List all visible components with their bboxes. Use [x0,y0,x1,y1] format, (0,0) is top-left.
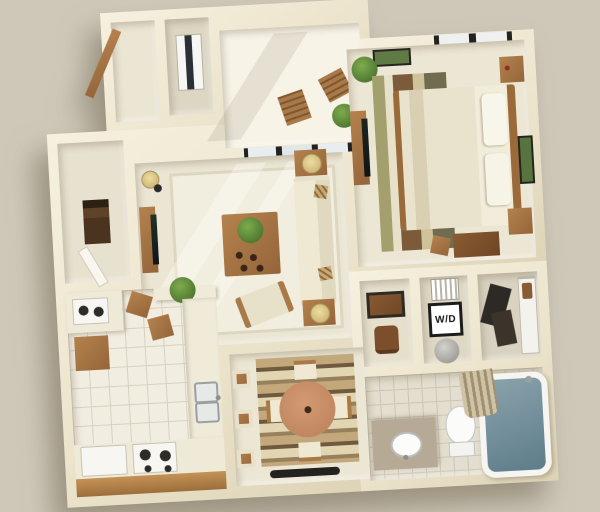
room-bathroom [365,367,549,481]
sink-basin [195,401,220,423]
framed-art [518,135,536,184]
vanity-faucet [403,455,408,460]
bed-throw [409,89,431,230]
vanity-counter [371,417,438,470]
queen-bed [393,84,523,231]
nightstand-candle [505,65,510,70]
floor-mat [270,467,340,479]
sink-basin [194,381,219,403]
bedroom-desk [453,231,500,258]
closet-storage-box [522,283,533,300]
room-hall-nook [359,278,414,367]
nightstand [499,56,524,83]
floorplan-render: W/D [0,0,600,512]
room-closet [477,271,542,360]
room-kitchen [66,285,227,497]
end-table [302,299,335,327]
faucet [216,395,221,400]
upper-cabinet [66,290,124,333]
microwave-cart [74,335,110,371]
room-utility-closet [164,17,213,115]
room-balcony [219,23,365,149]
toilet-tank [449,441,476,457]
table-lamp [301,153,322,174]
bar-stool [234,409,253,428]
framed-art [372,48,411,67]
shelving-unit [517,275,539,354]
patio-chair [277,89,311,126]
stove-burners [139,449,151,461]
cooktop [72,297,109,325]
range-stove [132,442,178,474]
bed-pillow [481,93,508,146]
throw-pillow [318,266,333,281]
coffee-table [221,212,280,277]
floor-lamp-base [154,184,162,192]
apartment-plan: W/D [49,0,568,512]
room-entry [111,20,161,122]
table-centerpiece [304,406,311,413]
cooktop-burners [78,305,89,316]
room-laundry: W/D [419,275,472,364]
bookshelf [82,199,110,244]
nightstand [508,207,533,234]
coffee-table-plant [237,216,264,243]
dining-chair [298,442,321,462]
laundry-basket [434,338,460,364]
washer-dryer-label: W/D [431,305,461,335]
room-dining [229,347,374,486]
office-chair [374,325,400,354]
bar-stool [147,314,174,341]
bed-pillow [484,153,511,206]
bar-stool [126,291,153,318]
water-heater [175,34,204,91]
end-table [294,149,327,177]
hanging-clothes [491,310,517,347]
room-alcove [57,140,131,283]
refrigerator [80,444,128,477]
floor-lamp [141,170,160,195]
bedroom-desk-chair [430,235,451,256]
washer-dryer-unit: W/D [428,301,464,337]
drying-rack [430,278,459,302]
table-lamp [310,303,331,324]
coffee-cups [236,252,243,259]
shower-curtain [458,368,499,419]
balcony-shadow [207,32,308,142]
bar-stool [237,449,256,468]
nook-desk [366,291,405,319]
throw-pillow [313,184,328,199]
bar-stool [232,369,251,388]
room-bedroom [346,40,536,268]
interior-door [78,246,109,288]
dining-chair [294,360,317,380]
